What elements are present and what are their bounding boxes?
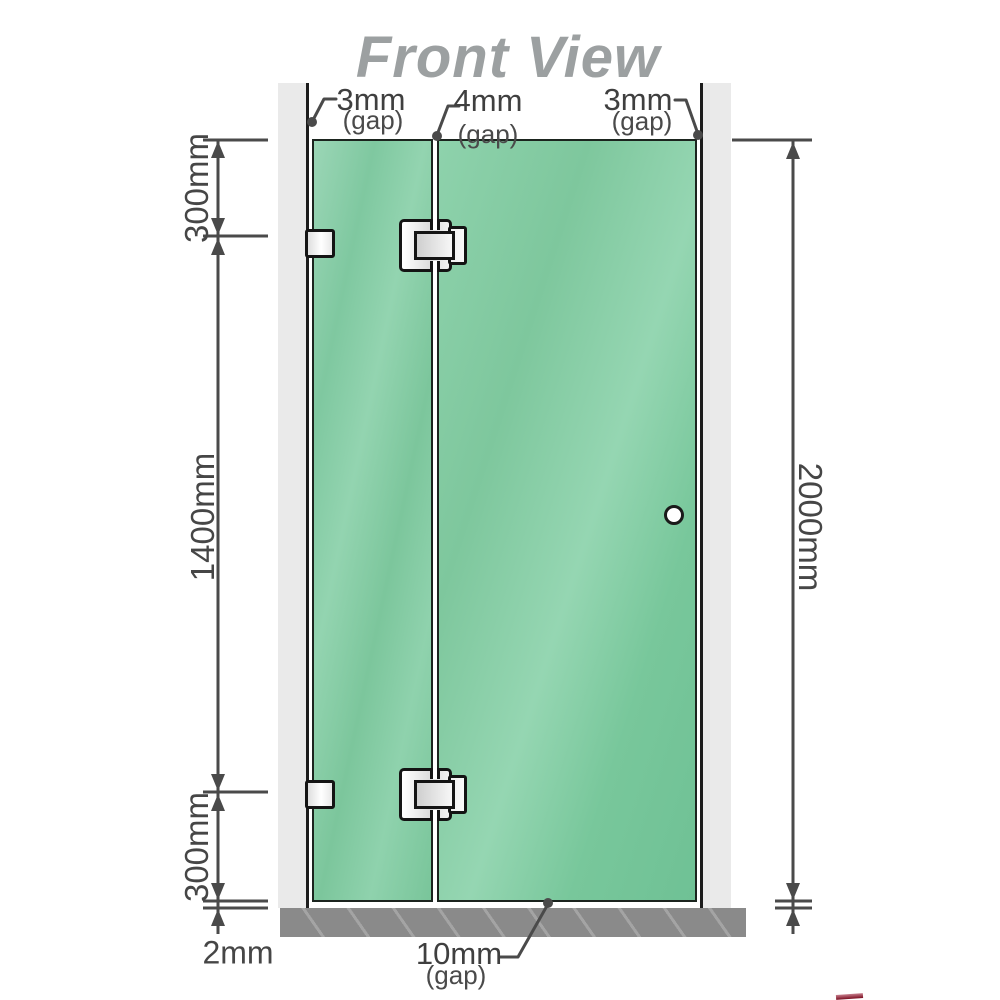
- gap-label-middle-note: (gap): [448, 119, 528, 150]
- dimension-label-bottom-left: 300mm: [178, 792, 216, 902]
- front-view-diagram: Front View: [0, 0, 1000, 1000]
- dimension-label-right-total: 2000mm: [791, 463, 829, 591]
- gap-label-middle-value: 4mm: [450, 83, 526, 119]
- gap-label-left-note: (gap): [333, 105, 413, 136]
- gap-leader-lines: [312, 99, 698, 957]
- dimension-label-top-left: 300mm: [178, 133, 216, 243]
- gap-label-bottom-note: (gap): [412, 960, 500, 991]
- gap-leader-dots: [307, 117, 703, 908]
- dimension-label-middle-left: 1400mm: [184, 453, 222, 581]
- gap-label-right-note: (gap): [604, 106, 680, 137]
- dimension-overlay: [0, 0, 1000, 1000]
- dimension-label-base-gap: 2mm: [202, 935, 273, 972]
